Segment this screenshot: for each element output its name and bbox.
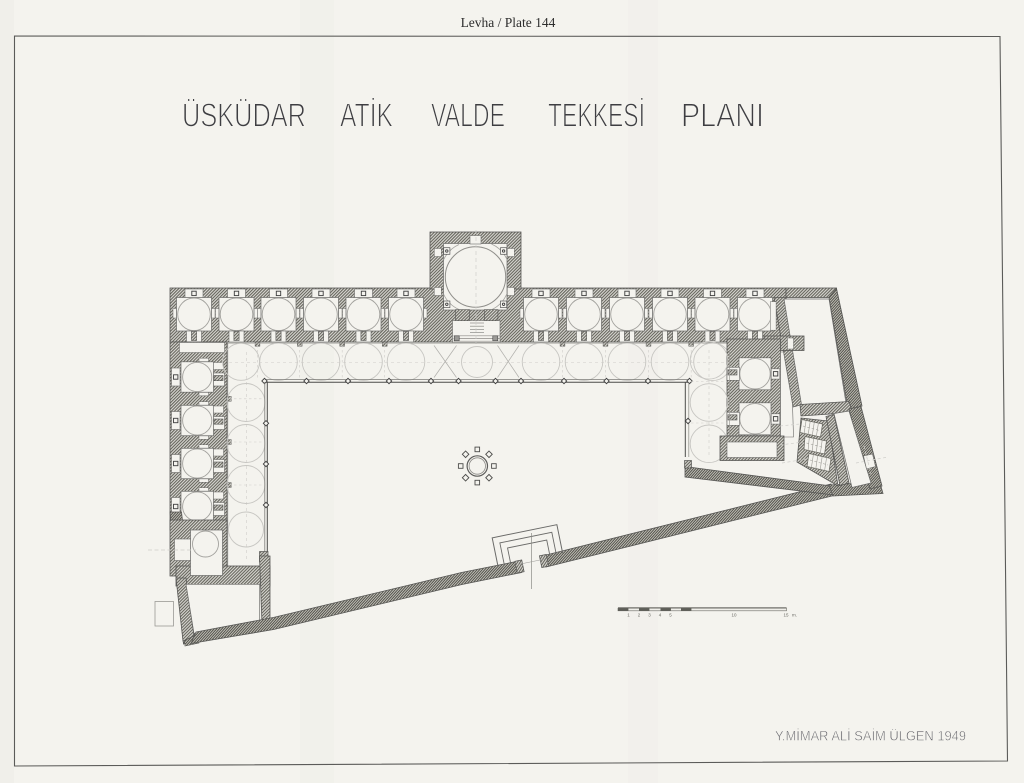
svg-text:m.: m. [792, 613, 797, 618]
svg-text:ATİK: ATİK [340, 97, 393, 134]
svg-text:10: 10 [731, 613, 737, 618]
svg-text:PLANI: PLANI [681, 97, 764, 134]
svg-text:ÜSKÜDAR: ÜSKÜDAR [182, 97, 306, 134]
svg-text:15: 15 [783, 613, 789, 618]
svg-text:TEKKESİ: TEKKESİ [548, 97, 645, 134]
svg-text:VALDE: VALDE [431, 97, 505, 134]
svg-text:Y.MİMAR ALİ SAİM ÜLGEN 1949: Y.MİMAR ALİ SAİM ÜLGEN 1949 [775, 729, 966, 744]
svg-text:Levha / Plate 144: Levha / Plate 144 [461, 15, 556, 30]
